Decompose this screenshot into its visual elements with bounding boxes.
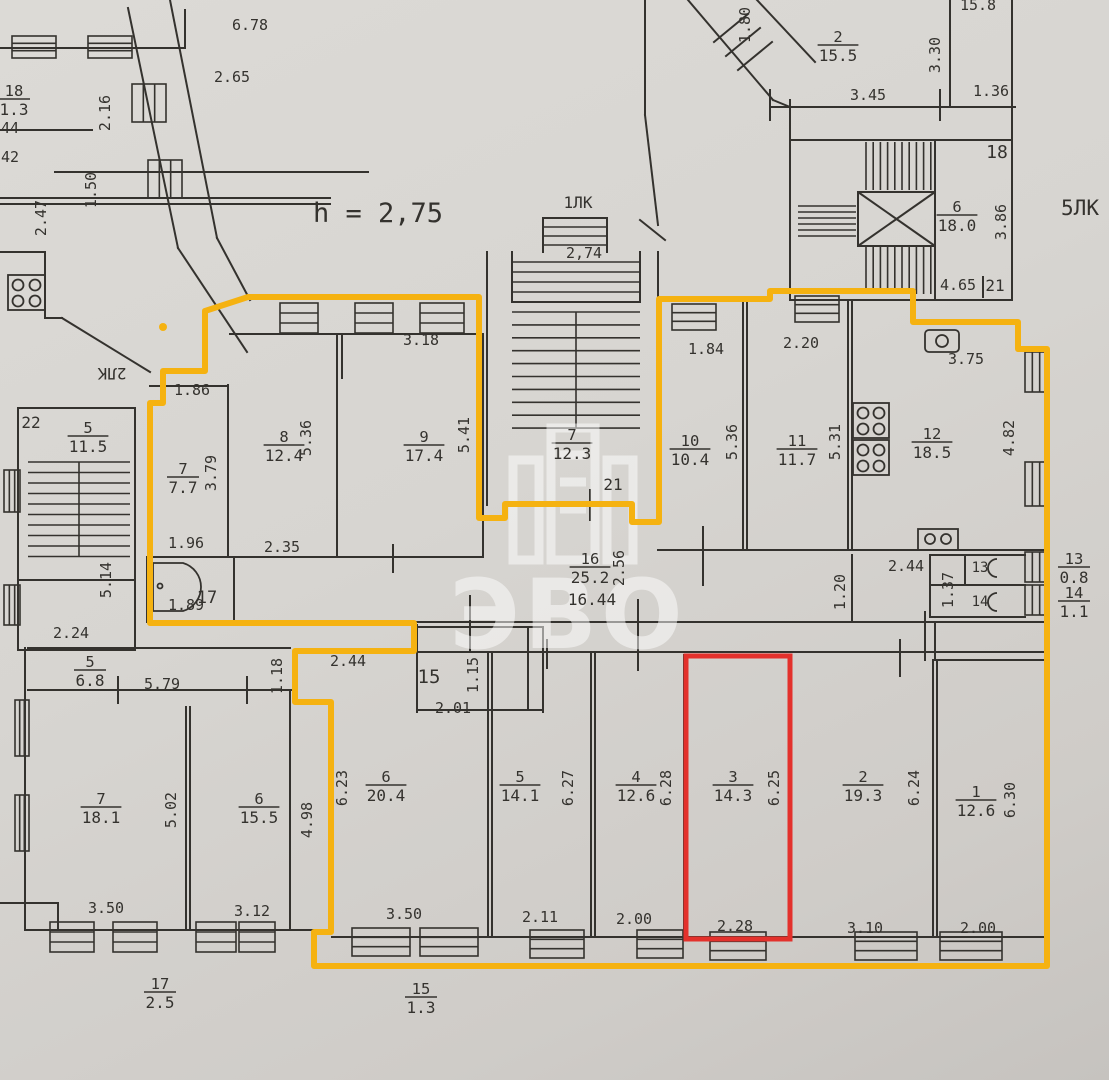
dim-label: 18: [986, 142, 1008, 163]
room-number: 2: [833, 28, 842, 46]
dim-label: 3.75: [948, 350, 984, 368]
room-number: 7: [96, 790, 105, 808]
dim-label: 1.50: [82, 172, 100, 208]
dim-label: 2.35: [264, 538, 300, 556]
window-icon: [530, 930, 584, 958]
room-label: 215.5: [819, 28, 858, 65]
room-area: 14.1: [501, 786, 540, 805]
room-area: 1.3: [407, 998, 436, 1017]
stove-2burner-icon: [918, 529, 958, 550]
window-icon: [672, 304, 716, 330]
room-area: 12.6: [617, 786, 656, 805]
door-arc-icon: [988, 559, 997, 577]
dim-label: 2.16: [96, 95, 114, 131]
room-number: 10: [681, 432, 700, 450]
dim-label: 5ЛК: [1061, 196, 1099, 220]
room-label: 917.4: [405, 428, 444, 465]
room-number: 9: [419, 428, 428, 446]
dim-label: 3.30: [926, 37, 944, 73]
room-number: 16: [581, 550, 600, 568]
room-number: 7: [178, 460, 187, 478]
room-area: 10.4: [671, 450, 710, 469]
dim-label: 6.25: [765, 770, 783, 806]
window-icon: [148, 160, 182, 198]
window-icon: [420, 303, 464, 333]
dim-label: 5.36: [723, 424, 741, 460]
floor-plan-svg: ЭВО 181.3215.5618.0511.577.7812.4917.471…: [0, 0, 1109, 1080]
room-area: 25.2: [571, 568, 610, 587]
room-area: 18.0: [938, 216, 977, 235]
room-number: 6: [381, 768, 390, 786]
dim-label: 44: [1, 119, 19, 137]
room-area: 2.5: [146, 993, 175, 1012]
dim-label: 1.80: [736, 7, 754, 43]
dim-label: 2.44: [888, 557, 924, 575]
dim-label: 5.14: [97, 562, 115, 598]
sink-icon: [925, 330, 959, 352]
room-area: 15.5: [819, 46, 858, 65]
dim-label: 2.11: [522, 908, 558, 926]
room-label: 141.1: [1060, 584, 1089, 621]
room-area: 12.6: [957, 801, 996, 820]
dim-label: 15: [418, 666, 441, 688]
room-number: 17: [151, 975, 170, 993]
dim-label: 1.89: [168, 596, 204, 614]
room-number: 11: [788, 432, 807, 450]
window-icon: [352, 928, 410, 956]
room-label: 181.3: [0, 82, 28, 119]
dim-label: 1.96: [168, 534, 204, 552]
room-area: 19.3: [844, 786, 883, 805]
room-label: 412.6: [617, 768, 656, 805]
room-label: 1218.5: [913, 425, 952, 462]
dim-label: 16.44: [568, 590, 616, 609]
dim-label: 2.24: [53, 624, 89, 642]
yellow-dot: [159, 323, 167, 331]
room-label: 514.1: [501, 768, 540, 805]
room-number: 6: [952, 198, 961, 216]
dim-label: 2ЛК: [97, 364, 126, 383]
walls-layer: [0, 0, 1089, 997]
dim-label: 5.79: [144, 675, 180, 693]
room-label: 219.3: [844, 768, 883, 805]
room-area: 14.3: [714, 786, 753, 805]
dim-label: 3.18: [403, 331, 439, 349]
watermark-text: ЭВО: [449, 559, 686, 671]
room-area: 11.5: [69, 437, 108, 456]
room-number: 4: [631, 768, 640, 786]
window-icon: [132, 84, 166, 122]
door-arc-icon: [988, 593, 997, 611]
dim-label: 42: [1, 148, 19, 166]
window-icon: [1025, 462, 1047, 506]
room-label: 314.3: [714, 768, 753, 805]
watermark: ЭВО: [449, 428, 686, 671]
window-icon: [15, 700, 29, 756]
window-icon: [196, 922, 236, 952]
dim-label: h = 2,75: [313, 198, 443, 229]
room-area: 18.5: [913, 443, 952, 462]
dim-label: 1.20: [831, 574, 849, 610]
dim-label: 6.24: [905, 770, 923, 806]
dim-label: 21: [603, 475, 622, 494]
dim-label: 6.78: [232, 16, 268, 34]
dim-label: 5.31: [826, 424, 844, 460]
room-number: 8: [279, 428, 288, 446]
room-label: 1111.7: [778, 432, 817, 469]
room-area: 6.8: [76, 671, 105, 690]
dim-label: 3.45: [850, 86, 886, 104]
window-icon: [113, 922, 157, 952]
room-label: 172.5: [146, 975, 175, 1012]
bathtub-drain-icon: [158, 584, 163, 589]
window-icon: [15, 795, 29, 851]
window-icon: [355, 303, 393, 333]
room-number: 6: [254, 790, 263, 808]
room-number: 2: [858, 768, 867, 786]
room-label: 112.6: [957, 783, 996, 820]
dim-label: 4.82: [1000, 420, 1018, 456]
room-label: 151.3: [407, 980, 436, 1017]
dim-label: 4.98: [298, 802, 316, 838]
room-number: 13: [1065, 550, 1084, 568]
dim-label: 1.18: [268, 658, 286, 694]
dim-label: 6.23: [333, 770, 351, 806]
room-label: 620.4: [367, 768, 406, 805]
dim-label: 14: [972, 594, 989, 610]
dim-label: 2.00: [616, 910, 652, 928]
windows-layer: [4, 36, 1047, 960]
dim-label: 1.36: [973, 82, 1009, 100]
dim-label: 15.8: [960, 0, 996, 14]
room-number: 3: [728, 768, 737, 786]
dim-label: 6.30: [1001, 782, 1019, 818]
window-icon: [1025, 552, 1047, 582]
room-area: 1.1: [1060, 602, 1089, 621]
dim-label: 3.10: [847, 919, 883, 937]
window-icon: [1025, 585, 1047, 615]
dim-label: 3.79: [202, 455, 220, 491]
room-label: 77.7: [169, 460, 198, 497]
window-icon: [239, 922, 275, 952]
dim-label: 2,74: [566, 244, 602, 262]
room-number: 1: [971, 783, 980, 801]
dim-label: 1ЛК: [564, 193, 593, 212]
dim-label: 1.15: [464, 657, 482, 693]
dim-label: 2.65: [214, 68, 250, 86]
window-icon: [50, 922, 94, 952]
dim-label: 6.28: [657, 770, 675, 806]
room-number: 5: [83, 419, 92, 437]
dim-label: 1.86: [174, 381, 210, 399]
room-number: 7: [567, 426, 576, 444]
dim-label: 2.56: [610, 550, 628, 586]
room-area: 18.1: [82, 808, 121, 827]
dim-label: 3.86: [992, 204, 1010, 240]
window-icon: [637, 930, 683, 958]
room-number: 5: [85, 653, 94, 671]
room-label: 618.0: [938, 198, 977, 235]
room-number: 12: [923, 425, 942, 443]
dim-label: 13: [972, 560, 989, 576]
dim-label: 2.28: [717, 917, 753, 935]
room-area: 1.3: [0, 100, 28, 119]
dim-label: 1.37: [939, 572, 957, 608]
room-number: 14: [1065, 584, 1084, 602]
dim-label: 2.47: [32, 200, 50, 236]
dim-label: 4.65: [940, 276, 976, 294]
dim-label: 2.01: [435, 699, 471, 717]
dim-label: 5.02: [162, 792, 180, 828]
room-area: 15.5: [240, 808, 279, 827]
room-label: 130.8: [1060, 550, 1089, 587]
room-label: 1010.4: [671, 432, 710, 469]
window-icon: [420, 928, 478, 956]
dim-label: 2.44: [330, 652, 366, 670]
dim-label: 3.50: [88, 899, 124, 917]
dim-label: 1.84: [688, 340, 724, 358]
room-label: 511.5: [69, 419, 108, 456]
dim-label: 21: [985, 276, 1004, 295]
room-area: 20.4: [367, 786, 406, 805]
window-icon: [280, 303, 318, 333]
room-number: 5: [515, 768, 524, 786]
dim-label: 6.27: [559, 770, 577, 806]
room-area: 17.4: [405, 446, 444, 465]
dim-label: 5.36: [297, 420, 315, 456]
window-icon: [1025, 352, 1047, 392]
dim-label: 3.50: [386, 905, 422, 923]
floor-plan-scan: ЭВО 181.3215.5618.0511.577.7812.4917.471…: [0, 0, 1109, 1080]
room-area: 12.3: [553, 444, 592, 463]
dim-label: 2.20: [783, 334, 819, 352]
room-number: 15: [412, 980, 431, 998]
room-area: 11.7: [778, 450, 817, 469]
dim-label: 22: [21, 413, 40, 432]
dim-label: 5.41: [455, 417, 473, 453]
room-number: 18: [5, 82, 24, 100]
dim-label: 2.00: [960, 919, 996, 937]
room-label: 56.8: [76, 653, 105, 690]
dim-label: 3.12: [234, 902, 270, 920]
room-area: 7.7: [169, 478, 198, 497]
room-label: 615.5: [240, 790, 279, 827]
room-label: 718.1: [82, 790, 121, 827]
